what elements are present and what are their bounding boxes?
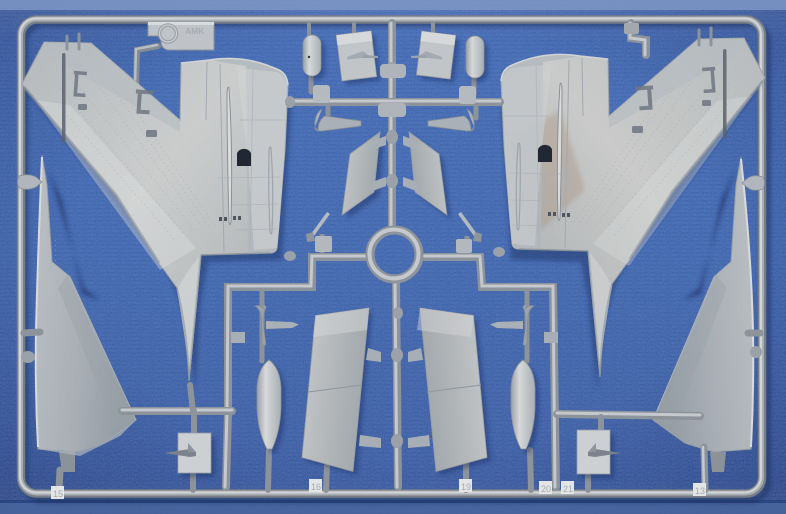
svg-text:19: 19 [461, 482, 471, 492]
svg-text:21: 21 [563, 484, 573, 494]
svg-text:16: 16 [311, 482, 321, 492]
svg-text:13: 13 [695, 486, 705, 496]
svg-text:AMK: AMK [185, 26, 205, 36]
svg-text:20: 20 [541, 484, 551, 494]
svg-text:15: 15 [53, 489, 63, 499]
